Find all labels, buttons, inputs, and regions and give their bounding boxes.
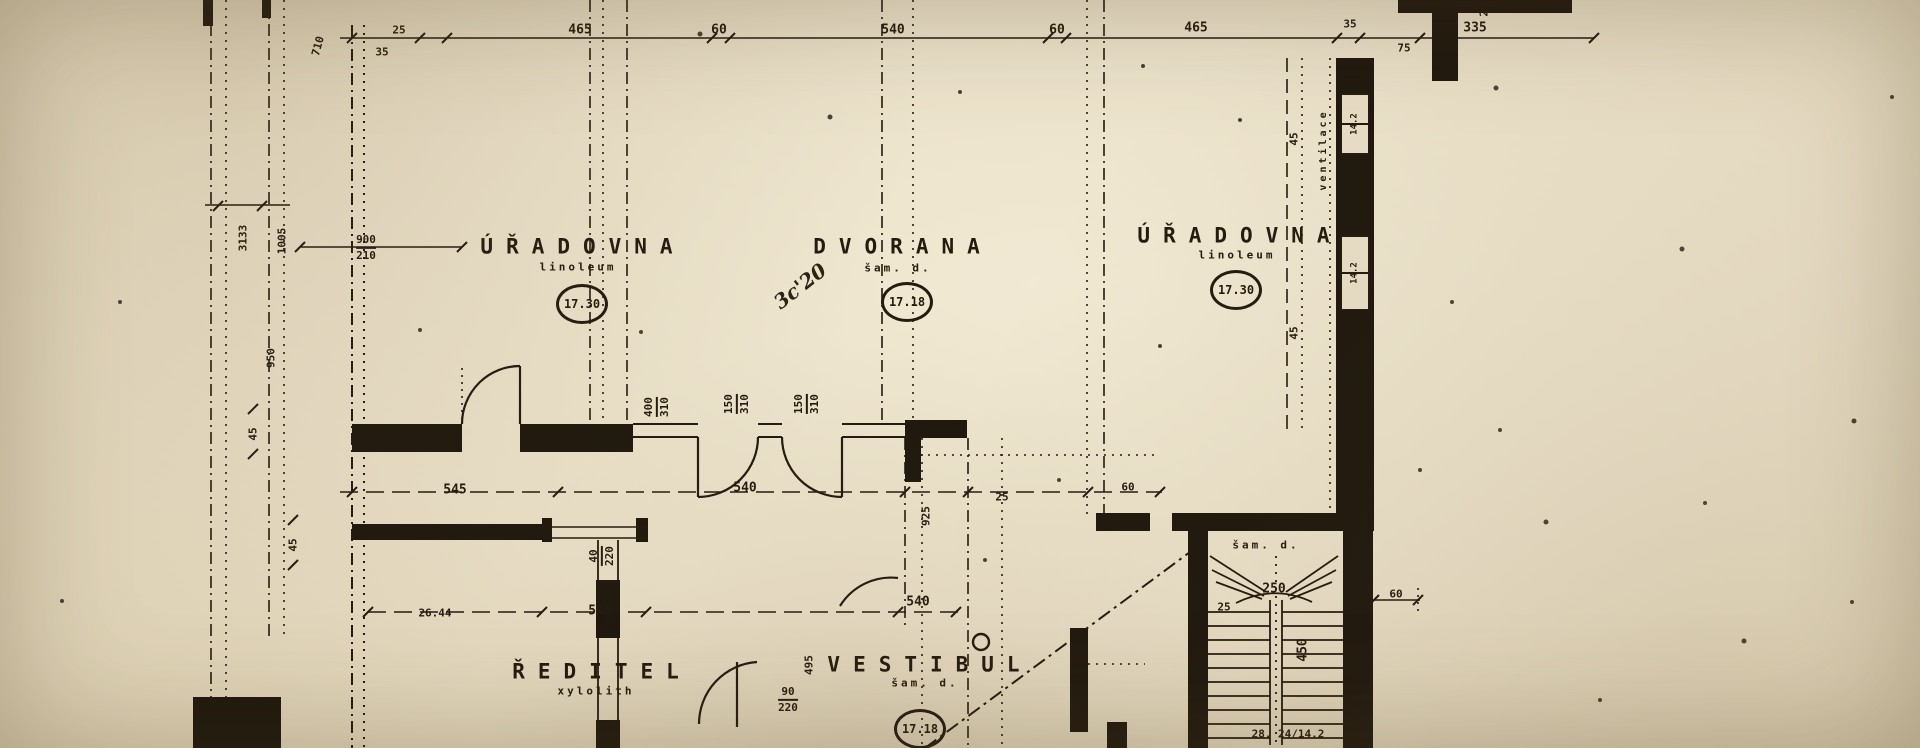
dim-mid-925: 925 bbox=[921, 506, 932, 526]
floor-label-vestibule: šam. d. bbox=[891, 678, 958, 689]
floorplan-scan: ÚŘADOVNA linoleum 17.30 DVORANA šam. d. … bbox=[0, 0, 1920, 748]
dim-top-465-right: 465 bbox=[1184, 22, 1207, 35]
room-label-vestibule: VESTIBUL bbox=[827, 655, 1032, 676]
plan-linework bbox=[0, 0, 1920, 748]
door-dim-hall-b-den: 310 bbox=[736, 394, 752, 414]
dim-mid-26-44: 26.44 bbox=[418, 608, 451, 619]
dimension-lines bbox=[205, 0, 1599, 748]
vent-box-label-1: 14.2 bbox=[1351, 113, 1360, 135]
dim-top-75: 75 bbox=[1397, 43, 1410, 54]
dim-top-540: 540 bbox=[881, 24, 904, 37]
dim-top-25-rotated: 25 bbox=[1479, 3, 1490, 16]
dim-top-35-right: 35 bbox=[1343, 19, 1356, 30]
dim-mid-545-upper: 545 bbox=[443, 484, 466, 497]
room-label-director: ŘEDITEL bbox=[512, 662, 692, 683]
dim-top-25: 25 bbox=[392, 25, 405, 36]
dim-top-60-left: 60 bbox=[711, 24, 727, 37]
floor-label-hall: šam. d. bbox=[864, 263, 931, 274]
dim-top-35-left: 35 bbox=[375, 47, 388, 58]
stair-tread-dim: 25 bbox=[1217, 602, 1230, 613]
door-dim-vestibule-num: 90 bbox=[778, 686, 798, 699]
dim-left-1005: 1005 bbox=[277, 228, 288, 255]
level-badge-office-left: 17.30 bbox=[556, 284, 608, 324]
door-dim-left-office-num: 900 bbox=[356, 234, 376, 247]
level-badge-hall: 17.18 bbox=[881, 282, 933, 322]
dim-left-45-upper: 45 bbox=[248, 427, 259, 440]
dim-right-45-upper: 45 bbox=[1289, 132, 1300, 145]
dim-mid-25: 25 bbox=[995, 492, 1008, 503]
door-dim-left-office: 900 210 bbox=[356, 234, 376, 262]
door-dim-vestibule: 90 220 bbox=[778, 686, 798, 714]
door-dim-hall-a-num: 400 bbox=[643, 397, 656, 417]
door-dim-director: 40 220 bbox=[588, 546, 616, 566]
dim-stairs-60-right: 60 bbox=[1389, 589, 1402, 600]
dim-vestibule-495: 495 bbox=[804, 655, 815, 675]
level-badge-office-right: 17.30 bbox=[1210, 270, 1262, 310]
door-dim-hall-a: 400 310 bbox=[643, 397, 671, 417]
dim-left-950: 950 bbox=[266, 348, 277, 368]
stair-flight-dim: 450 bbox=[1297, 638, 1310, 661]
room-label-office-right: ÚŘADOVNA bbox=[1137, 226, 1342, 247]
door-dim-director-num: 40 bbox=[588, 546, 601, 566]
door-dim-vestibule-den: 220 bbox=[778, 699, 798, 715]
door-dim-hall-c: 150 310 bbox=[793, 394, 821, 414]
dim-mid-60-left: 60 bbox=[1121, 482, 1134, 493]
floor-label-office-left: linoleum bbox=[540, 262, 617, 273]
dim-top-465-left: 465 bbox=[568, 24, 591, 37]
dim-right-45-lower: 45 bbox=[1289, 326, 1300, 339]
level-badge-vestibule: 17.18 bbox=[894, 709, 946, 748]
dim-mid-540-upper: 540 bbox=[733, 482, 756, 495]
scan-specks bbox=[60, 32, 1894, 703]
door-dim-hall-b-num: 150 bbox=[723, 394, 736, 414]
dim-left-3133: 3133 bbox=[238, 225, 249, 252]
room-label-office-left: ÚŘADOVNA bbox=[480, 237, 685, 258]
floor-label-office-right: linoleum bbox=[1199, 250, 1276, 261]
door-dim-director-den: 220 bbox=[601, 546, 617, 566]
ventilation-label: ventilace bbox=[1319, 109, 1329, 190]
floor-label-director: xylolith bbox=[558, 686, 635, 697]
dim-mid-545-lower: 545 bbox=[588, 605, 611, 618]
door-dim-hall-a-den: 310 bbox=[656, 397, 672, 417]
dim-mid-540-lower: 540 bbox=[906, 596, 929, 609]
stair-landing-dim: 250 bbox=[1262, 583, 1285, 596]
dim-top-60-right: 60 bbox=[1049, 24, 1065, 37]
room-label-hall: DVORANA bbox=[813, 237, 993, 258]
dim-left-45-lower: 45 bbox=[288, 538, 299, 551]
floor-label-staircase: šam. d. bbox=[1232, 540, 1299, 551]
vent-box-label-2: 14.2 bbox=[1351, 262, 1360, 284]
dim-top-335: 335 bbox=[1463, 22, 1486, 35]
stair-steps-note: 28. 24/14.2 bbox=[1252, 729, 1325, 740]
door-dim-hall-c-den: 310 bbox=[806, 394, 822, 414]
door-dim-hall-c-num: 150 bbox=[793, 394, 806, 414]
door-dim-left-office-den: 210 bbox=[356, 247, 376, 263]
door-dim-hall-b: 150 310 bbox=[723, 394, 751, 414]
